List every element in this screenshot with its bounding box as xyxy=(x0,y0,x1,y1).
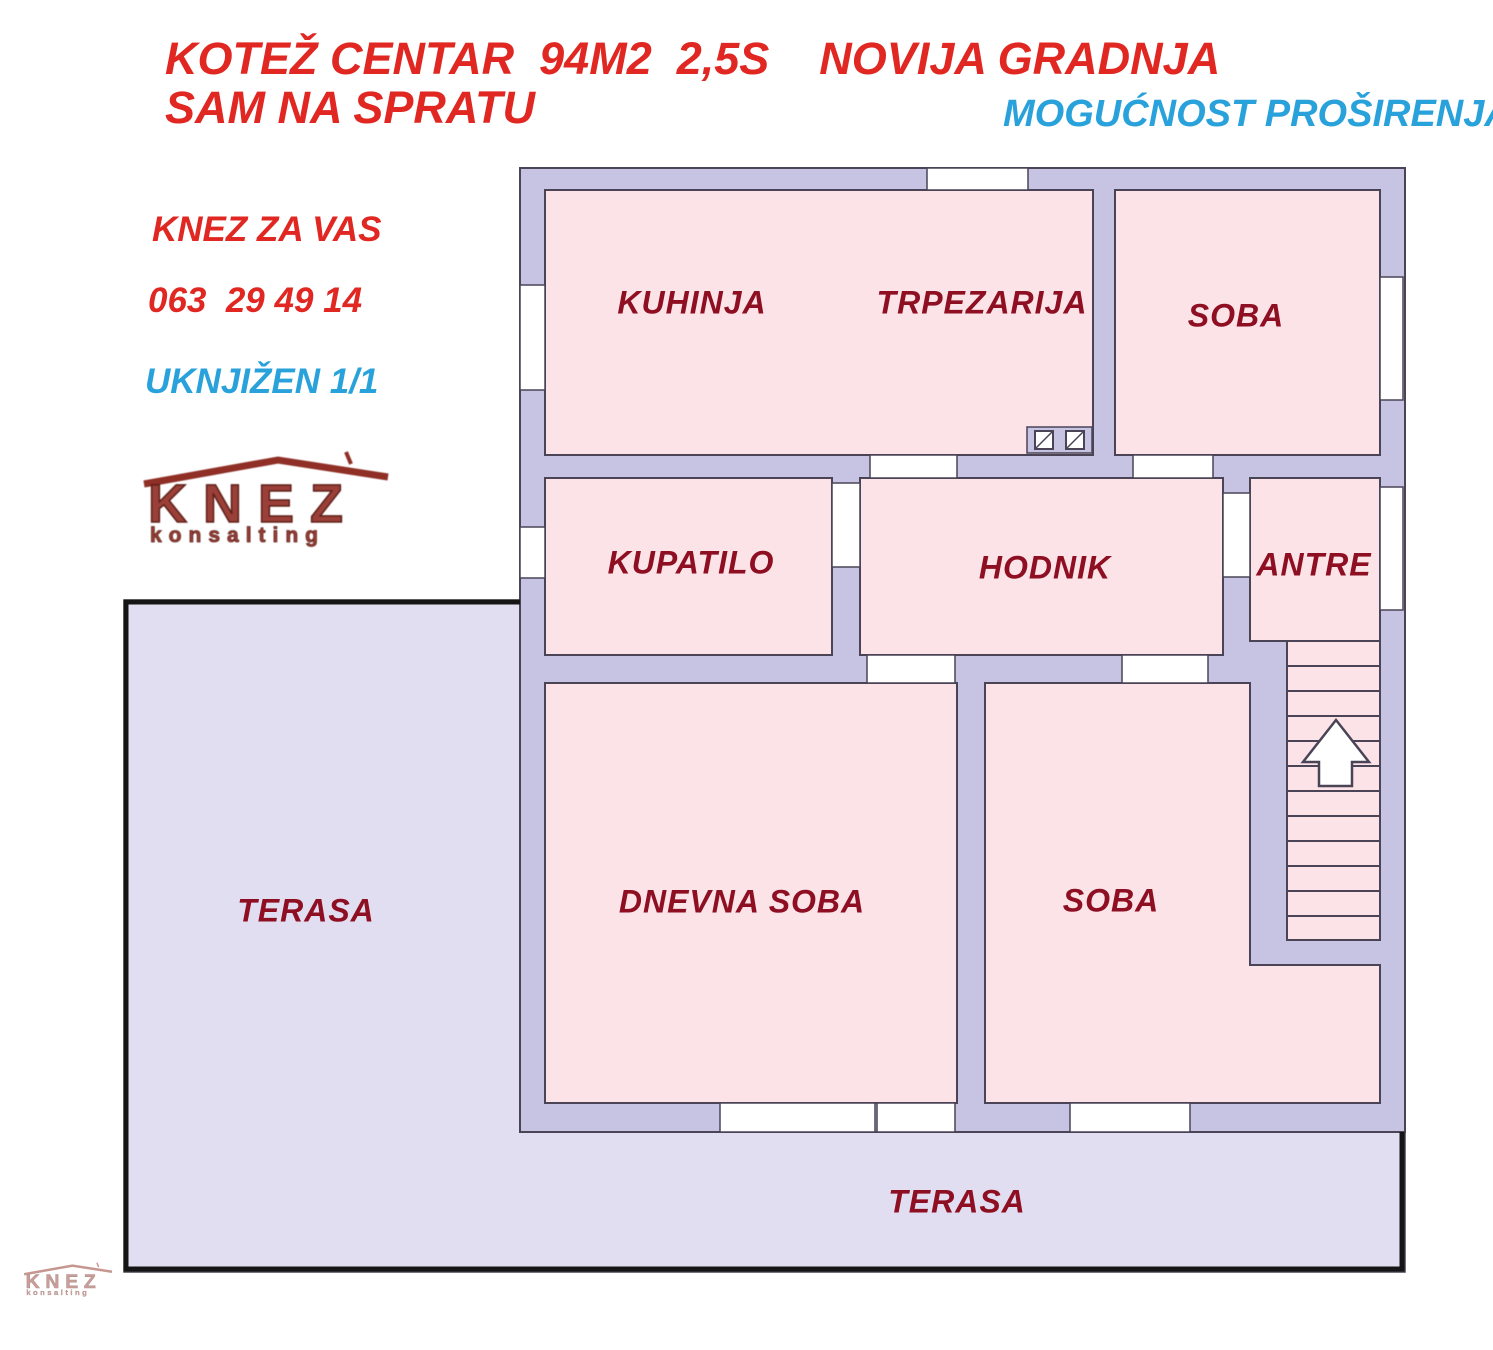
entrance-door-gap xyxy=(1380,487,1403,610)
room-label-hodnik: HODNIK xyxy=(979,550,1111,587)
room-label-terasa-bottom: TERASA xyxy=(888,1184,1026,1221)
room-label-terasa-left: TERASA xyxy=(237,893,375,930)
door-soba-top xyxy=(1133,455,1213,478)
staircase xyxy=(1287,641,1380,940)
room-label-soba-top: SOBA xyxy=(1188,298,1284,335)
room-kuhinja-trpezarija xyxy=(545,190,1093,455)
room-label-dnevna-soba: DNEVNA SOBA xyxy=(619,884,865,921)
door-hodnik-antre xyxy=(1223,493,1250,577)
opening-bottom-1 xyxy=(720,1103,875,1132)
agency-phone: 063 29 49 14 xyxy=(148,283,362,318)
room-label-soba-bottom: SOBA xyxy=(1063,883,1159,920)
opening-bottom-2 xyxy=(877,1103,955,1132)
listing-title-line2: SAM NA SPRATU xyxy=(165,85,535,130)
window-kuhinja-left xyxy=(520,285,545,390)
window-kupatilo-left xyxy=(520,527,545,578)
floor-plan xyxy=(0,0,1493,1350)
watermark-subtitle-text: konsalting xyxy=(26,1288,89,1297)
door-kupatilo xyxy=(832,483,860,567)
door-soba-bottom xyxy=(1122,655,1208,683)
logo-subtitle-text: konsalting xyxy=(150,524,325,547)
ownership-status: UKNJIŽEN 1/1 xyxy=(145,364,378,399)
door-dnevna-soba xyxy=(867,655,955,683)
room-label-antre: ANTRE xyxy=(1256,547,1371,584)
vent-shafts xyxy=(1027,427,1092,453)
room-label-trpezarija: TRPEZARIJA xyxy=(877,285,1088,322)
room-label-kupatilo: KUPATILO xyxy=(608,545,775,582)
window-soba-top-right xyxy=(1380,277,1403,400)
door-trpezarija-hodnik xyxy=(870,455,957,478)
opening-bottom-3 xyxy=(1070,1103,1190,1132)
window-top-wall xyxy=(927,168,1028,190)
agency-logo-watermark: KNEZ konsalting xyxy=(22,1262,117,1298)
listing-title-line1: KOTEŽ CENTAR 94M2 2,5S NOVIJA GRADNJA xyxy=(165,36,1220,81)
agency-tagline: KNEZ ZA VAS xyxy=(152,212,381,247)
room-label-kuhinja: KUHINJA xyxy=(617,285,766,322)
agency-logo: KNEZ konsalting xyxy=(138,450,403,550)
expansion-note: MOGUĆNOST PROŠIRENJA xyxy=(1003,95,1493,133)
